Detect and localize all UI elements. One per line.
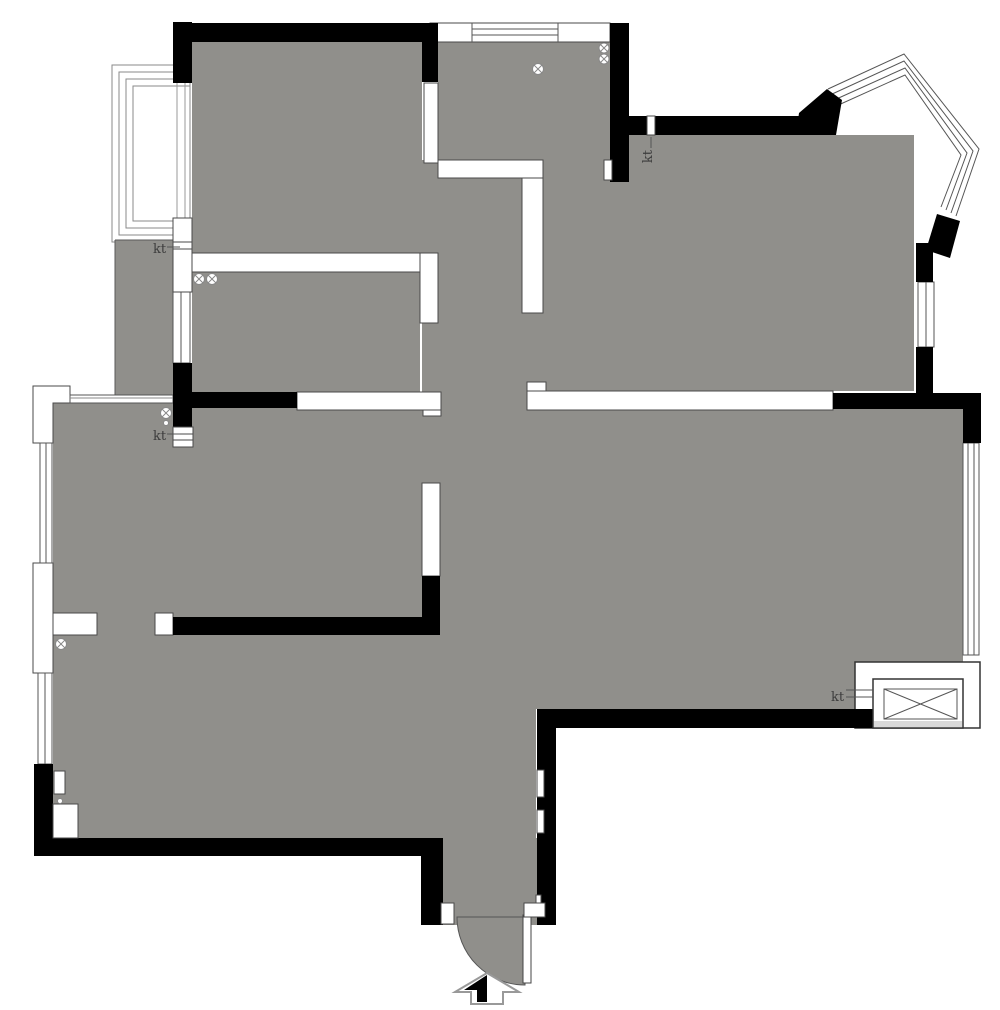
wall-living-right-pier — [963, 409, 981, 443]
wall-bay-diagonal-left — [796, 89, 842, 135]
wall-center-l-horiz — [173, 617, 440, 635]
partition-notch — [527, 382, 546, 391]
balcony-window-frame — [112, 65, 190, 242]
hall-upper-floor — [543, 160, 629, 409]
wall-left-bottom — [34, 764, 53, 838]
partition-hall-vert — [522, 178, 543, 313]
floor-plan: kt kt kt kt — [0, 0, 1000, 1010]
partition-room2-right — [420, 253, 438, 323]
ac-label-living: kt — [831, 690, 845, 705]
partition-bath-bottom — [438, 160, 543, 178]
circle-x-icon — [207, 274, 218, 285]
ac-label-balcony: kt — [153, 242, 167, 257]
circle-x-icon — [56, 639, 67, 650]
circle-x-icon — [161, 408, 172, 419]
window-left-top — [70, 395, 173, 403]
room-top-left-floor — [192, 42, 422, 253]
circle-x-icon — [599, 54, 609, 64]
pier-bottom-left — [53, 804, 78, 838]
room-top-right-floor — [629, 135, 914, 391]
wall-topleft-pier — [173, 22, 192, 83]
left-strip-floor — [115, 240, 173, 397]
room-mid-left-floor — [192, 272, 420, 392]
partition-center-vert — [422, 483, 440, 576]
door-leaf — [523, 915, 531, 983]
entry-corridor-floor — [443, 838, 537, 925]
fixture-entry-wall-2 — [537, 810, 544, 833]
wall-bedroom-right-pier — [916, 347, 933, 393]
wall-living-bottom — [537, 709, 873, 728]
ac-slot-balcony — [173, 218, 192, 292]
fixture-left-wall — [54, 771, 65, 794]
fixture-entry-wall-1 — [537, 770, 544, 797]
top-opening — [430, 23, 610, 42]
ac-label-midleft: kt — [153, 429, 167, 444]
partition-stub-left — [53, 613, 97, 635]
ac-slot-topright — [647, 116, 655, 135]
wall-left-t-vert — [173, 363, 192, 427]
ac-slot-midleft — [173, 427, 193, 447]
partition-stub-right — [155, 613, 173, 635]
circle-x-icon — [533, 64, 544, 75]
ac-label-topright: kt — [641, 149, 656, 163]
wall-bottom — [34, 838, 443, 856]
door-jamb-right — [524, 903, 545, 917]
small-circle-icon — [164, 421, 169, 426]
small-circle-icon — [58, 799, 63, 804]
wall-bed1-right — [422, 23, 438, 82]
wall-left-t-horiz — [192, 392, 297, 408]
wall-living-top-right — [833, 393, 981, 409]
partition-midleft-top — [297, 392, 441, 410]
partition-living-top — [527, 391, 833, 410]
partition-step — [423, 410, 441, 416]
pier-left-mid — [33, 563, 53, 673]
door-jamb-left — [441, 903, 454, 924]
elevator-shaft — [873, 679, 963, 728]
slot-bath-wall — [604, 160, 612, 180]
wall-top — [173, 23, 430, 42]
balcony-glazing-lines — [177, 83, 185, 218]
partition-bath-left — [424, 83, 438, 163]
room-bottom-mid-floor — [173, 408, 440, 635]
bottom-room-floor — [53, 635, 536, 838]
wall-bath-right — [610, 23, 629, 182]
bathroom-floor — [438, 42, 610, 160]
circle-x-icon — [194, 274, 205, 285]
wall-bay-pier — [916, 243, 933, 282]
wall-entry-left — [421, 856, 443, 925]
partition-bedroom-divider — [173, 253, 438, 272]
window-living-right — [963, 443, 979, 655]
circle-x-icon — [599, 43, 609, 53]
